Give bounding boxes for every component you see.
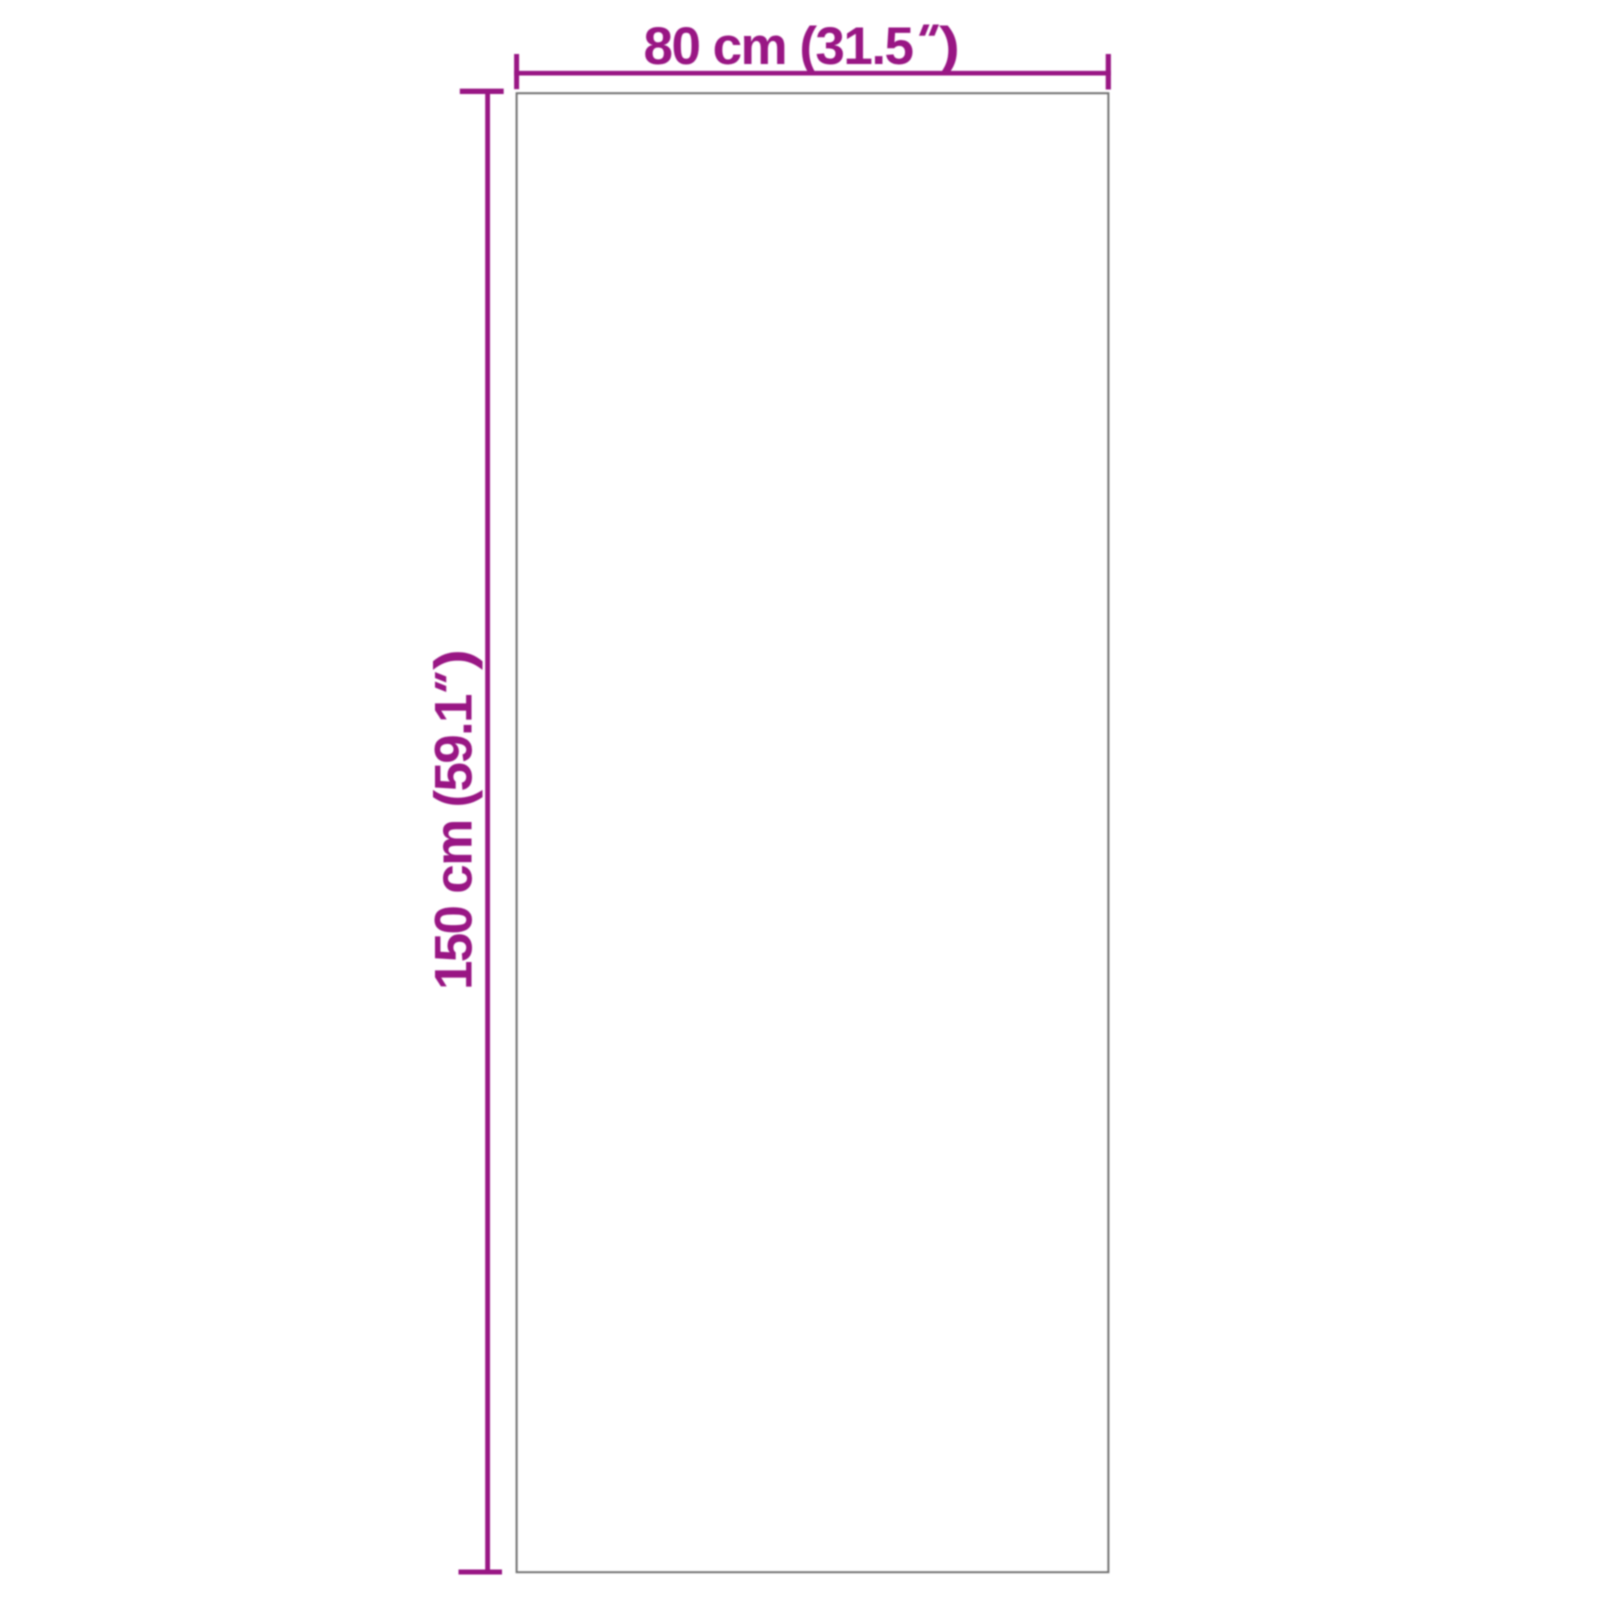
svg-text:150 cm (59.1: 150 cm (59.1 (425, 694, 484, 991)
svg-text:80 cm (31.5: 80 cm (31.5 (644, 17, 915, 76)
svg-text:): ) (939, 17, 960, 76)
svg-text:): ) (425, 649, 484, 670)
